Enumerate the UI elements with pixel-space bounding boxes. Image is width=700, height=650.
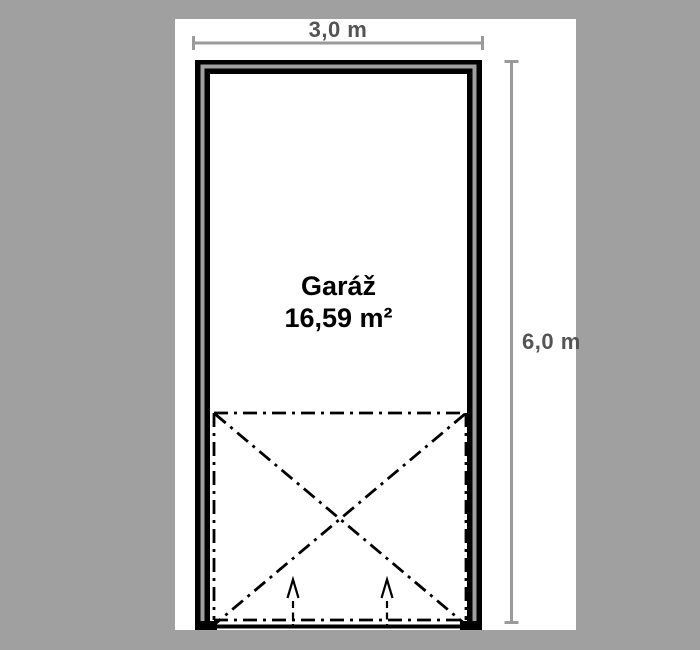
up-arrow-icon: [382, 580, 393, 599]
door-swing-diagonal-2: [215, 414, 465, 624]
walls-group: [195, 60, 482, 630]
up-arrow-icon: [288, 580, 299, 599]
door-threshold-line: [196, 625, 482, 629]
width-dimension-label: 3,0 m: [193, 17, 483, 43]
height-dimension-label: 6,0 m: [522, 329, 581, 355]
room-name: Garáž: [210, 270, 467, 302]
wall-foot-left: [195, 621, 217, 630]
door-arrow-left: [288, 580, 299, 627]
height-dimension-group: [505, 61, 519, 623]
wall-core-line: [203, 67, 475, 631]
floor-plan: 3,0 m 6,0 m Garáž 16,59 m²: [0, 0, 700, 650]
room-area: 16,59 m²: [210, 302, 467, 334]
door-swing-diagonal-1: [215, 414, 465, 624]
room-label: Garáž 16,59 m²: [210, 270, 467, 334]
door-swing-group: [214, 413, 466, 624]
